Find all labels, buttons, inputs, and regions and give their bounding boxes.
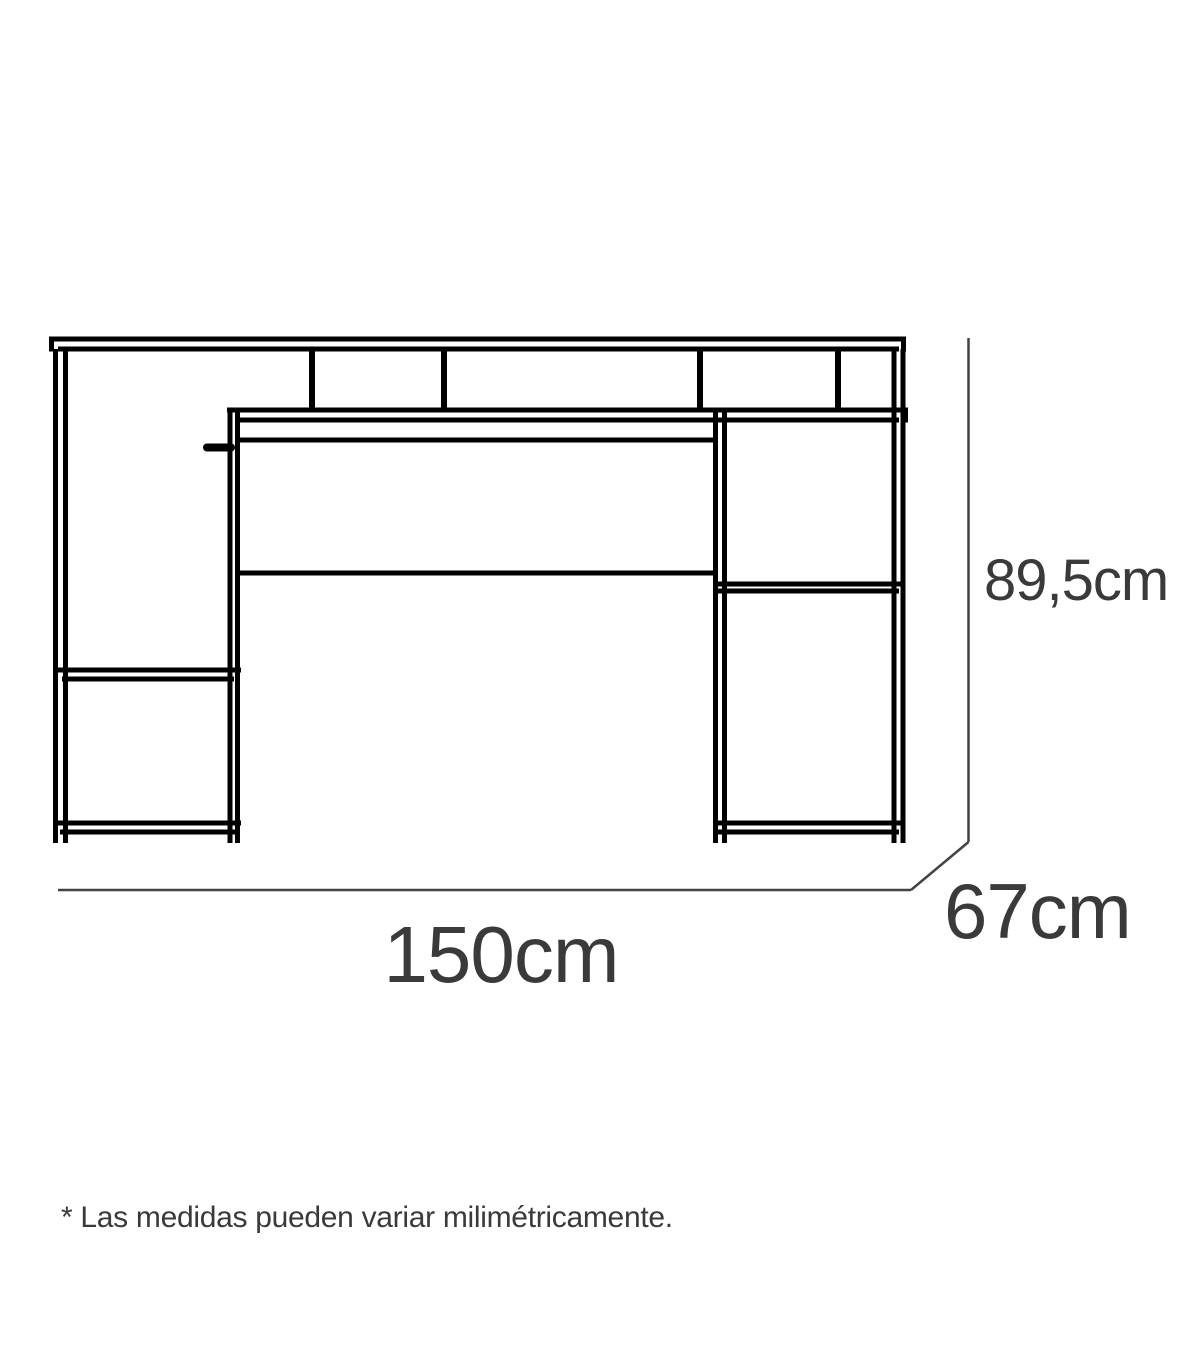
depth-dimension-label: 67cm [944, 867, 1131, 955]
desk-dimension-diagram: 150cm 67cm 89,5cm * Las medidas pueden v… [0, 0, 1200, 1372]
width-dimension-label: 150cm [383, 910, 618, 999]
measurement-disclaimer-footnote: * Las medidas pueden variar milimétricam… [61, 1201, 673, 1234]
height-dimension-label: 89,5cm [984, 548, 1168, 613]
desk-drawing [49, 337, 908, 844]
